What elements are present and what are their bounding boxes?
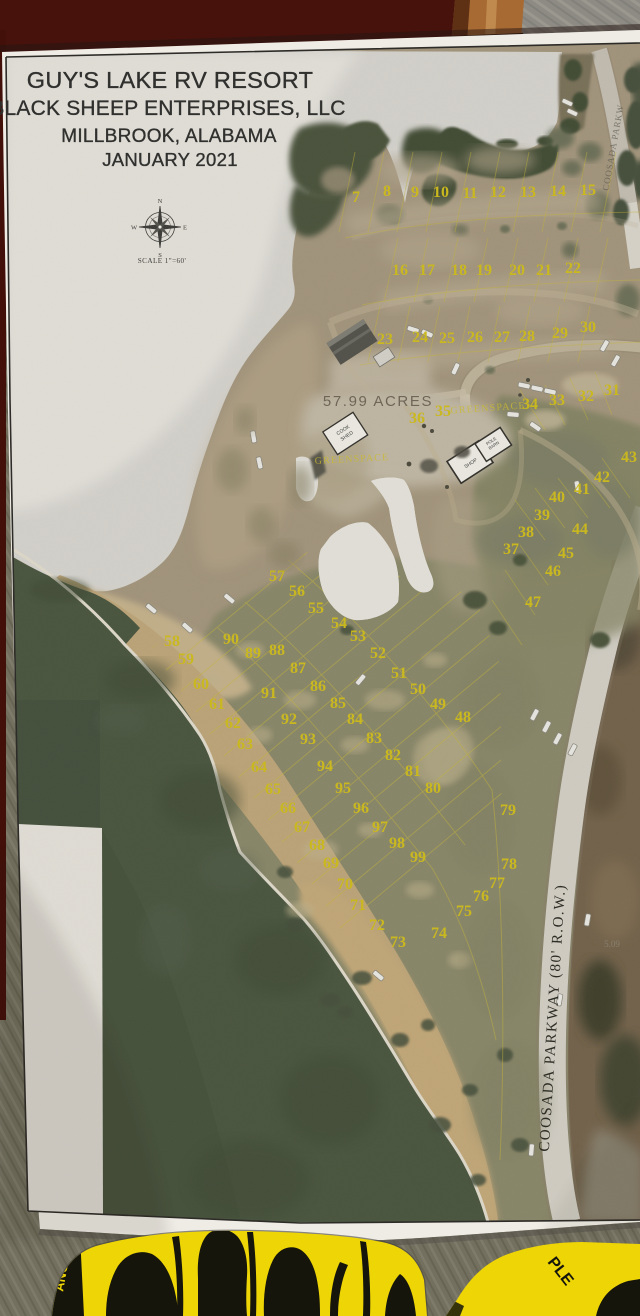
svg-text:E: E [183, 225, 187, 232]
svg-text:BLACK SHEEP ENTERPRISES, LLC: BLACK SHEEP ENTERPRISES, LLC [0, 97, 346, 120]
svg-text:GUY'S LAKE RV RESORT: GUY'S LAKE RV RESORT [27, 67, 314, 93]
svg-text:JANUARY 2021: JANUARY 2021 [102, 149, 238, 170]
svg-text:N: N [158, 198, 163, 205]
svg-text:W: W [131, 225, 138, 232]
svg-text:SCALE 1"=60': SCALE 1"=60' [138, 257, 186, 265]
svg-text:MILLBROOK, ALABAMA: MILLBROOK, ALABAMA [61, 126, 277, 147]
